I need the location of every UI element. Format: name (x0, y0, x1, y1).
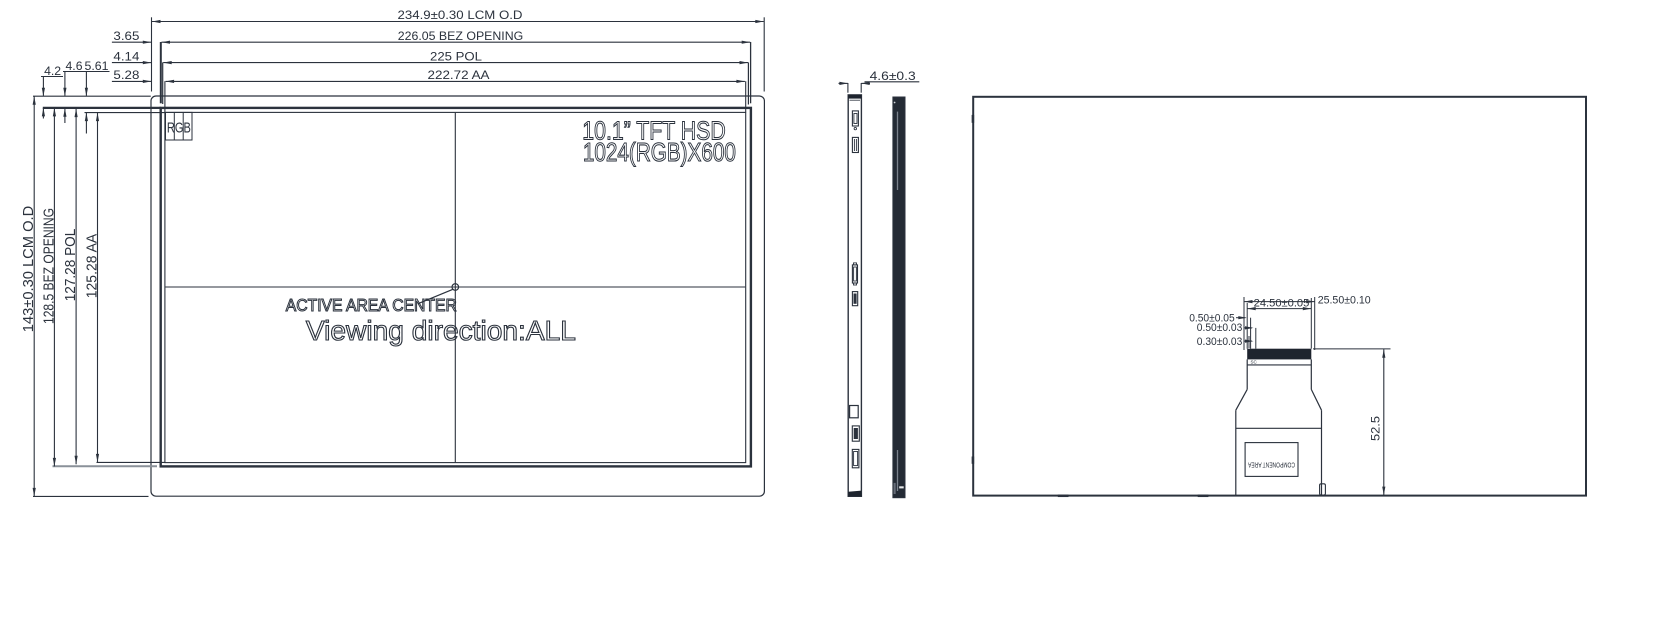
svg-text:52.5: 52.5 (1370, 416, 1383, 441)
svg-text:234.9±0.30 LCM O.D: 234.9±0.30 LCM O.D (398, 9, 523, 22)
svg-text:4.6±0.3: 4.6±0.3 (870, 70, 916, 83)
svg-text:0.30±0.03: 0.30±0.03 (1197, 336, 1243, 348)
svg-text:25.50±0.10: 25.50±0.10 (1318, 294, 1371, 306)
svg-text:4.2: 4.2 (44, 65, 61, 78)
svg-text:4.6: 4.6 (66, 60, 83, 73)
svg-text:Viewing direction:ALL: Viewing direction:ALL (306, 315, 576, 346)
svg-text:128.5 BEZ OPENING: 128.5 BEZ OPENING (40, 208, 57, 324)
svg-text:222.72 AA: 222.72 AA (428, 69, 490, 82)
svg-text:3.65: 3.65 (113, 30, 139, 43)
svg-text:5.28: 5.28 (113, 69, 139, 82)
svg-text:127.28 POL: 127.28 POL (62, 229, 79, 302)
svg-text:1024(RGB)X600: 1024(RGB)X600 (583, 137, 736, 167)
svg-text:ACTIVE AREA CENTER: ACTIVE AREA CENTER (286, 295, 457, 315)
svg-text:226.05 BEZ OPENING: 226.05 BEZ OPENING (398, 30, 524, 43)
svg-text:RGB: RGB (167, 121, 191, 137)
svg-text:125.28 AA: 125.28 AA (84, 234, 101, 299)
svg-text:24.50±0.05: 24.50±0.05 (1254, 298, 1310, 310)
svg-text:5.61: 5.61 (85, 60, 109, 73)
svg-text:143±0.30 LCM O.D: 143±0.30 LCM O.D (20, 206, 37, 333)
svg-text:SC: SC (1251, 360, 1258, 365)
svg-text:0.50±0.03: 0.50±0.03 (1197, 322, 1243, 334)
svg-text:225 POL: 225 POL (430, 50, 483, 63)
svg-text:4.14: 4.14 (113, 50, 140, 63)
svg-text:COMPONENT AREA: COMPONENT AREA (1248, 460, 1295, 469)
